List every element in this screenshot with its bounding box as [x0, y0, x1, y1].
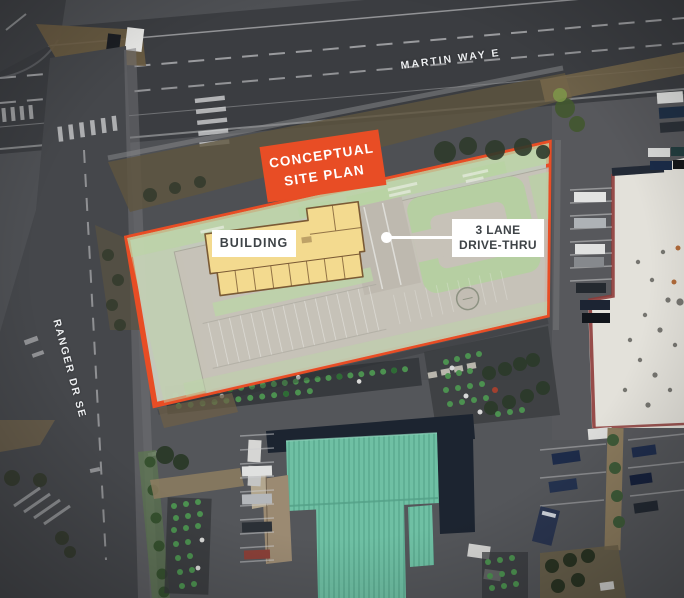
building-label: BUILDING: [212, 230, 296, 257]
drive-thru-label: 3 LANE DRIVE-THRU: [452, 219, 544, 257]
drive-thru-label-line2: DRIVE-THRU: [452, 238, 544, 253]
vignette: [0, 0, 684, 598]
drive-thru-label-line1: 3 LANE: [452, 223, 544, 238]
drive-thru-leader-line: [390, 236, 453, 239]
drive-thru-leader-dot: [381, 232, 392, 243]
aerial-photo: [0, 0, 684, 598]
building-label-text: BUILDING: [220, 236, 288, 250]
aerial-site-plan-view: MARTIN WAY E RANGER DR SE CONCEPTUAL SIT…: [0, 0, 684, 598]
